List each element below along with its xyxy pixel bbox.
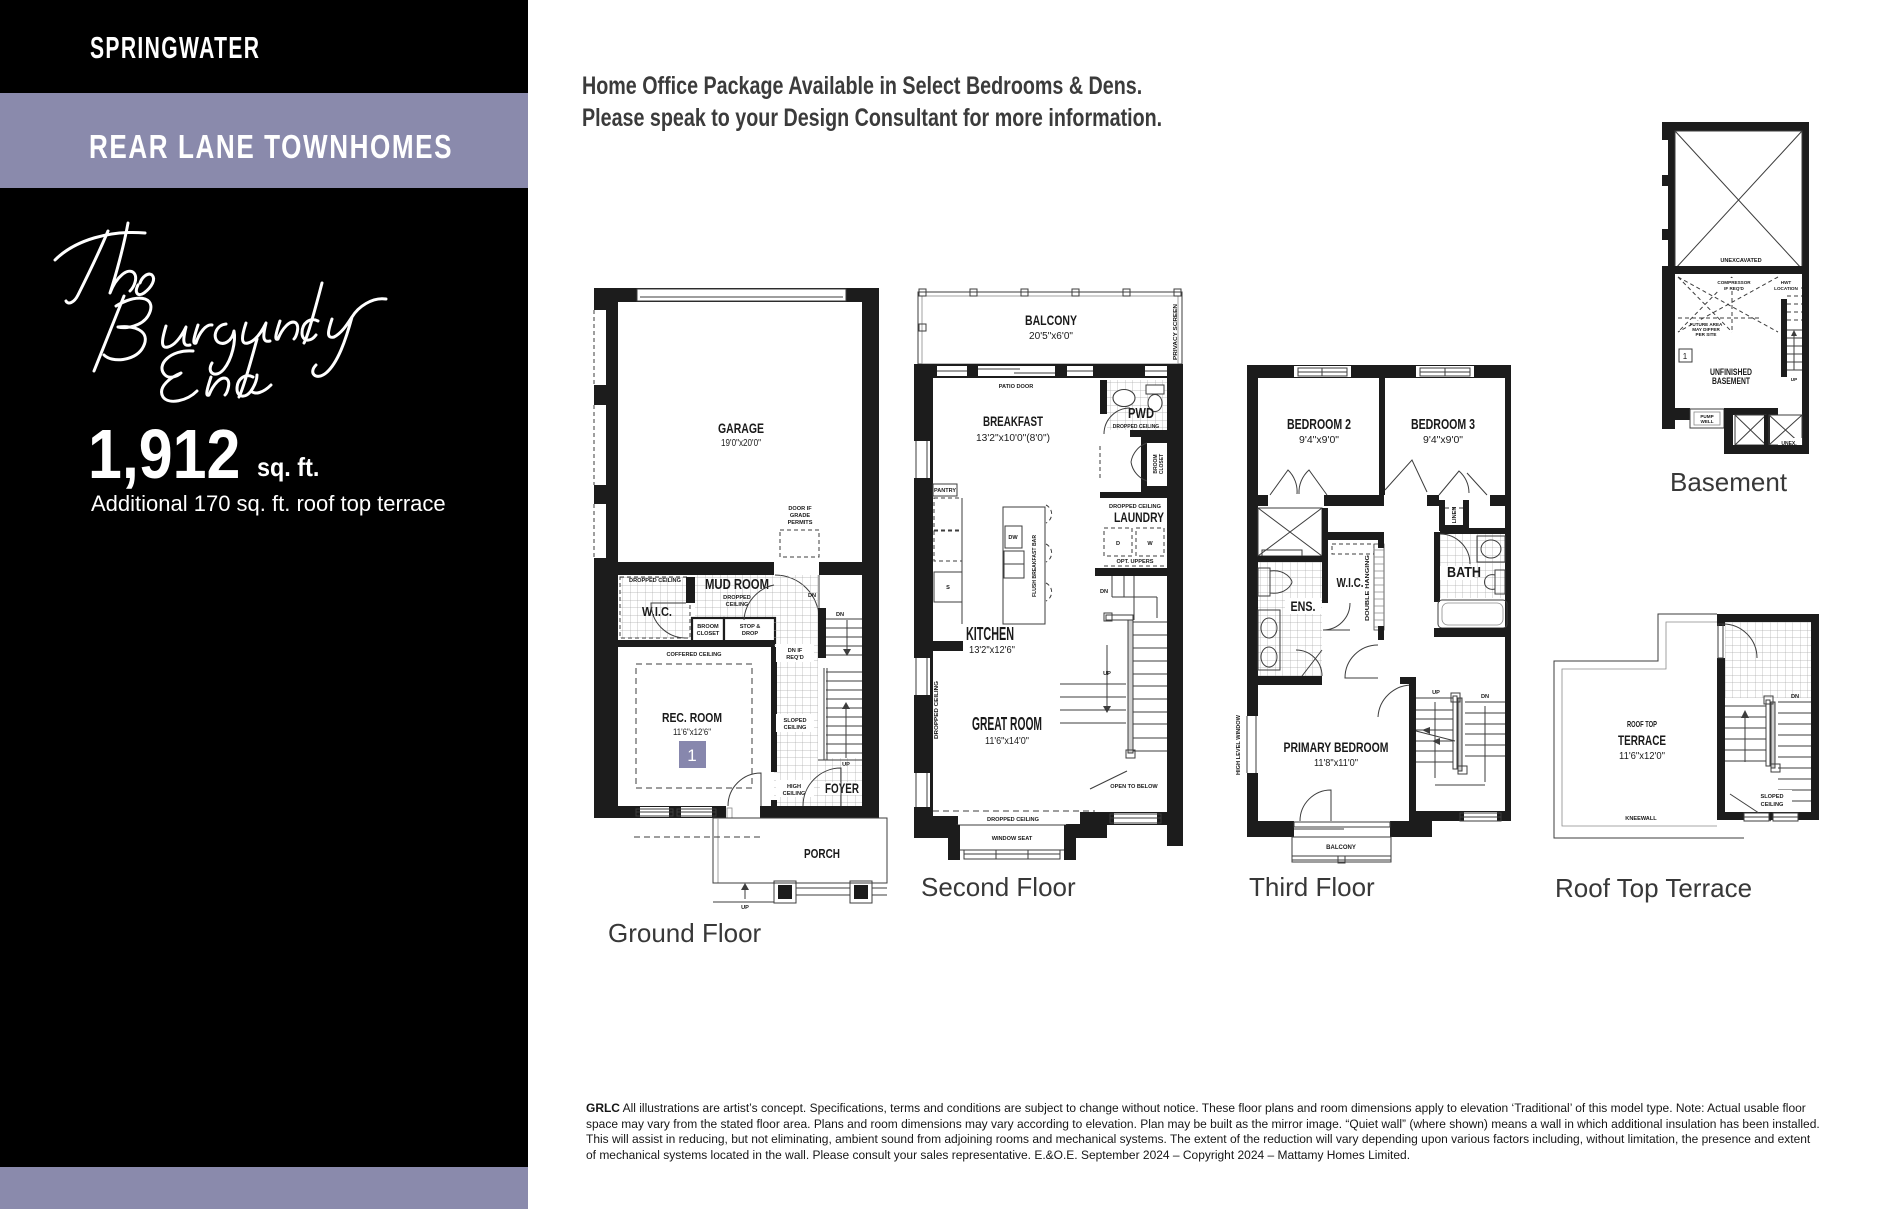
svg-text:DN: DN: [1481, 694, 1489, 700]
svg-text:OPT. UPPERS: OPT. UPPERS: [1117, 559, 1154, 565]
svg-text:BREAKFAST: BREAKFAST: [983, 413, 1043, 429]
svg-text:UNEXCAVATED: UNEXCAVATED: [1720, 258, 1761, 264]
svg-text:S: S: [946, 585, 950, 591]
svg-text:DOOR IF: DOOR IF: [788, 506, 812, 512]
svg-text:GRADE: GRADE: [790, 513, 810, 519]
svg-text:1: 1: [687, 746, 696, 765]
svg-text:DROPPED CEILING: DROPPED CEILING: [1113, 424, 1160, 430]
svg-text:KITCHEN: KITCHEN: [966, 624, 1014, 644]
svg-text:LAUNDRY: LAUNDRY: [1114, 509, 1164, 525]
svg-text:DN IF: DN IF: [788, 648, 803, 654]
svg-text:W: W: [1147, 541, 1153, 547]
svg-text:SLOPED: SLOPED: [1760, 794, 1783, 800]
svg-text:9'4"x9'0": 9'4"x9'0": [1299, 435, 1339, 446]
svg-text:CLOSET: CLOSET: [697, 631, 720, 637]
svg-text:11'6"x14'0": 11'6"x14'0": [985, 735, 1029, 747]
svg-text:IF REQ'D: IF REQ'D: [1724, 286, 1744, 291]
svg-text:DN: DN: [836, 612, 844, 618]
svg-text:MUD ROOM: MUD ROOM: [705, 577, 769, 593]
svg-text:1: 1: [1683, 352, 1688, 361]
svg-text:OPEN TO BELOW: OPEN TO BELOW: [1110, 784, 1158, 790]
svg-text:19'0"x20'0": 19'0"x20'0": [721, 438, 761, 449]
svg-text:13'2"x12'6": 13'2"x12'6": [969, 644, 1015, 656]
svg-text:DN: DN: [1100, 589, 1108, 595]
svg-text:CEILING: CEILING: [783, 791, 806, 797]
svg-text:DN: DN: [808, 593, 816, 599]
svg-text:UP: UP: [741, 905, 749, 911]
svg-text:BATH: BATH: [1447, 564, 1481, 581]
svg-text:GARAGE: GARAGE: [718, 420, 764, 436]
svg-text:CLOSET: CLOSET: [1159, 454, 1165, 474]
svg-text:STOP &: STOP &: [740, 624, 761, 630]
svg-text:PERMITS: PERMITS: [788, 520, 813, 526]
svg-text:FLUSH BREAKFAST BAR: FLUSH BREAKFAST BAR: [1032, 535, 1038, 597]
svg-text:BEDROOM 3: BEDROOM 3: [1411, 416, 1475, 433]
svg-text:COMPRESSOR: COMPRESSOR: [1717, 280, 1751, 285]
svg-text:FOYER: FOYER: [825, 780, 859, 796]
svg-text:PRIMARY BEDROOM: PRIMARY BEDROOM: [1284, 740, 1389, 755]
svg-text:BASEMENT: BASEMENT: [1712, 376, 1750, 386]
svg-text:HIGH: HIGH: [787, 784, 801, 790]
svg-text:DROP: DROP: [742, 631, 758, 637]
svg-text:11'8"x11'0": 11'8"x11'0": [1314, 758, 1358, 769]
svg-text:PER SITE: PER SITE: [1696, 332, 1717, 337]
svg-text:WELL: WELL: [1700, 419, 1713, 424]
svg-text:ROOF TOP: ROOF TOP: [1627, 719, 1657, 729]
svg-text:W.I.C.: W.I.C.: [1337, 576, 1364, 590]
svg-text:ENS.: ENS.: [1291, 599, 1316, 614]
svg-text:BROOM: BROOM: [697, 624, 719, 630]
svg-text:LINEN: LINEN: [1452, 507, 1458, 524]
svg-text:GREAT ROOM: GREAT ROOM: [972, 714, 1042, 734]
svg-text:REC. ROOM: REC. ROOM: [662, 710, 722, 725]
svg-text:PATIO DOOR: PATIO DOOR: [999, 384, 1034, 390]
svg-text:UP: UP: [1432, 690, 1440, 696]
svg-text:PRIVACY SCREEN: PRIVACY SCREEN: [1173, 304, 1179, 360]
svg-text:DN: DN: [1791, 694, 1799, 700]
svg-text:COFFERED CEILING: COFFERED CEILING: [666, 652, 721, 658]
svg-text:CEILING: CEILING: [1761, 802, 1784, 808]
svg-text:PANTRY: PANTRY: [934, 488, 956, 494]
svg-text:11'6"x12'0": 11'6"x12'0": [1619, 751, 1665, 762]
svg-text:PWD: PWD: [1128, 406, 1154, 422]
svg-text:BALCONY: BALCONY: [1025, 312, 1077, 328]
svg-text:UP: UP: [1791, 377, 1797, 382]
svg-text:DW: DW: [1008, 535, 1018, 541]
svg-text:HWT: HWT: [1781, 280, 1792, 285]
svg-text:TERRACE: TERRACE: [1618, 732, 1666, 748]
svg-text:WINDOW SEAT: WINDOW SEAT: [992, 836, 1033, 842]
svg-text:DROPPED: DROPPED: [723, 595, 751, 601]
svg-text:W.I.C.: W.I.C.: [642, 605, 672, 619]
svg-text:HIGH LEVEL WINDOW: HIGH LEVEL WINDOW: [1236, 714, 1242, 775]
svg-text:DROPPED CEILING: DROPPED CEILING: [987, 817, 1039, 823]
svg-text:11'6"x12'6": 11'6"x12'6": [673, 727, 711, 738]
svg-text:PORCH: PORCH: [804, 846, 840, 861]
svg-text:CEILING: CEILING: [784, 725, 807, 731]
svg-text:9'4"x9'0": 9'4"x9'0": [1423, 435, 1463, 446]
svg-text:REQ'D: REQ'D: [786, 655, 804, 661]
svg-text:LOCATION: LOCATION: [1774, 286, 1798, 291]
svg-text:13'2"x10'0"(8'0"): 13'2"x10'0"(8'0"): [976, 433, 1050, 444]
svg-text:KNEEWALL: KNEEWALL: [1625, 816, 1657, 822]
svg-text:D: D: [1116, 541, 1120, 547]
svg-text:20'5"x6'0": 20'5"x6'0": [1029, 331, 1073, 342]
svg-text:CEILING: CEILING: [726, 602, 749, 608]
svg-text:DROPPED CEILING: DROPPED CEILING: [934, 681, 940, 739]
svg-text:DROPPED CEILING: DROPPED CEILING: [629, 578, 681, 584]
svg-text:DOUBLE HANGING: DOUBLE HANGING: [1365, 555, 1371, 621]
svg-text:BALCONY: BALCONY: [1326, 845, 1356, 851]
svg-text:BEDROOM 2: BEDROOM 2: [1287, 416, 1351, 433]
svg-text:SLOPED: SLOPED: [783, 718, 806, 724]
